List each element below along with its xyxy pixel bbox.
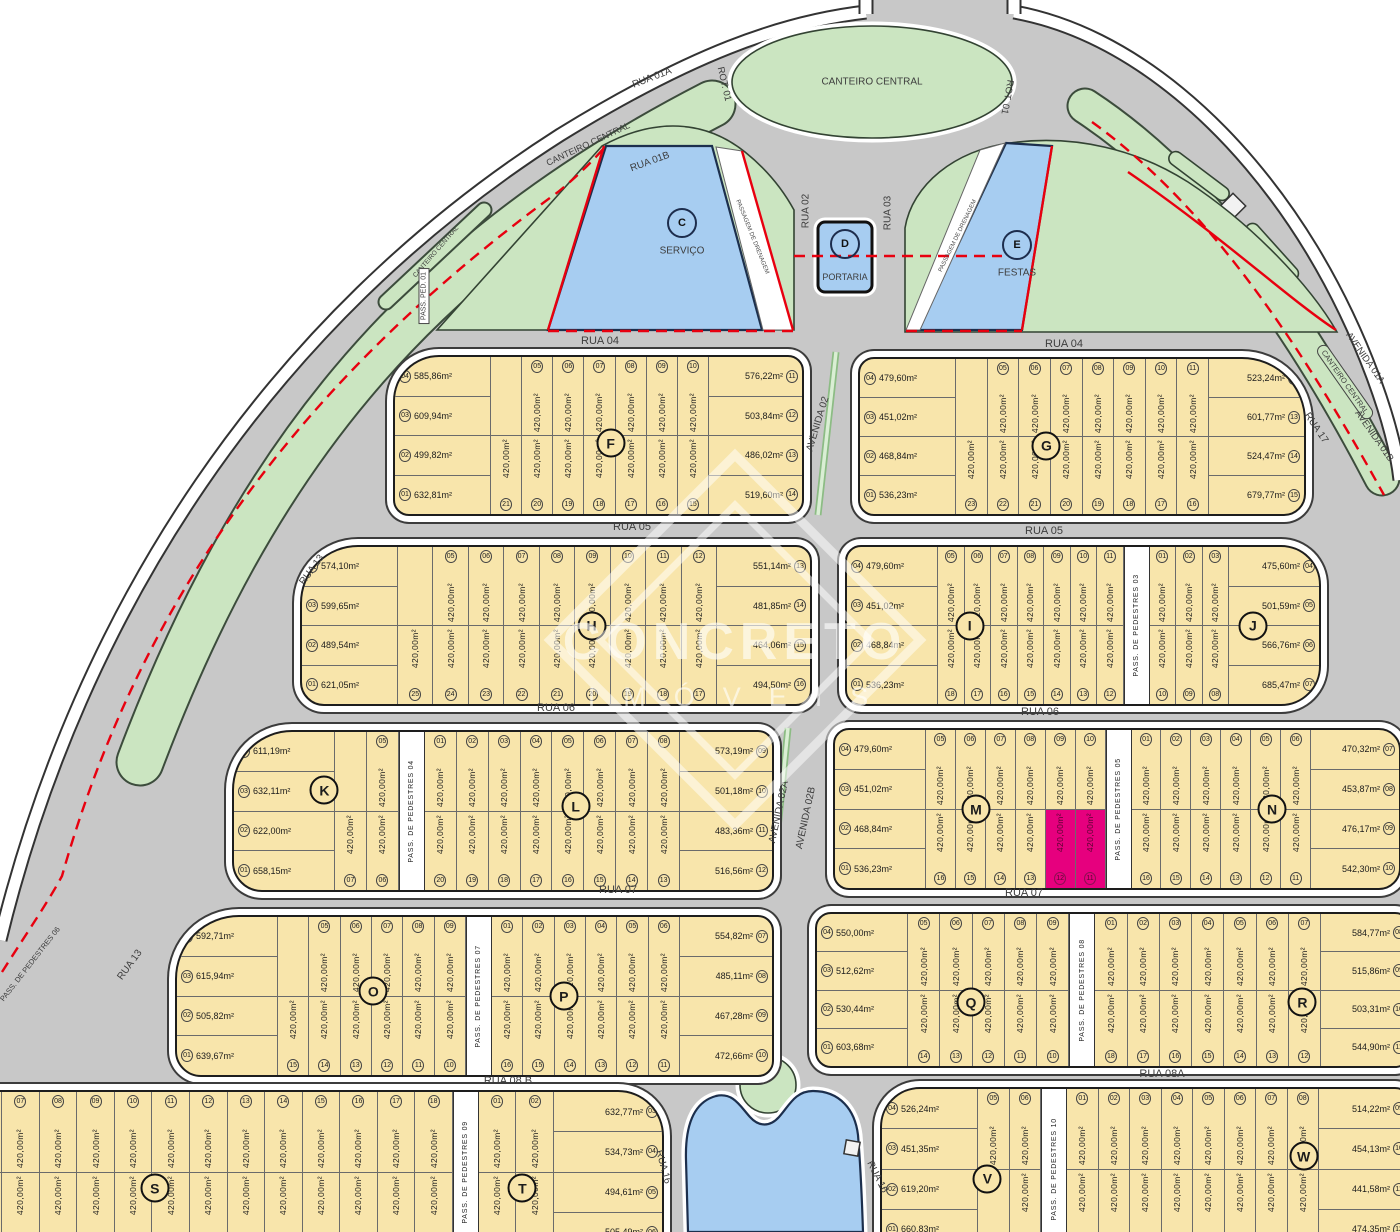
road-label: RUA 04	[1045, 338, 1083, 350]
road-label: RUA 07	[1005, 887, 1043, 899]
block-letter-I: I	[955, 611, 984, 640]
block-letter-S: S	[140, 1174, 169, 1203]
block-letter-Q: Q	[956, 988, 985, 1017]
block-letter-K: K	[310, 776, 339, 805]
road-label: RUA 06	[537, 702, 575, 714]
block-letter-W: W	[1289, 1142, 1318, 1171]
road-label: PASSAGEM DE DRENAGEM	[938, 199, 978, 273]
road-label: RUA 16	[864, 1159, 889, 1195]
road-label: AVENIDA 02	[804, 395, 831, 452]
road-label: AVENIDA 02A	[767, 780, 791, 844]
road-label: RUA 16	[653, 1149, 673, 1185]
road-label: RUA 04	[581, 335, 619, 347]
block-letter-V: V	[973, 1164, 1002, 1193]
block-letter-R: R	[1288, 988, 1317, 1017]
block-letter-L: L	[561, 792, 590, 821]
road-label: PASSAGEM DE DRENAGEM	[734, 199, 769, 275]
area-letter-C: C	[667, 208, 697, 238]
block-letter-F: F	[596, 429, 625, 458]
road-label: RUA 08A	[1139, 1068, 1184, 1080]
road-label: FESTAS	[998, 268, 1036, 279]
road-label: PASS. PED. 01	[419, 268, 430, 324]
road-label: RUA 03	[883, 196, 894, 230]
road-label: CANTEIRO CENTRAL	[821, 77, 922, 88]
block-letter-T: T	[508, 1174, 537, 1203]
road-label: RUA 01B	[629, 150, 671, 174]
road-label: RUA 17	[1302, 411, 1330, 446]
block-letter-O: O	[359, 977, 388, 1006]
block-letter-H: H	[577, 611, 606, 640]
block-letter-P: P	[549, 982, 578, 1011]
block-letter-G: G	[1032, 431, 1061, 460]
road-label: SERVIÇO	[660, 246, 705, 257]
subdivision-map: 04585,86m²03609,94m²02499,82m²01632,81m²…	[0, 0, 1400, 1232]
road-label: RUA 01A	[631, 65, 673, 90]
road-label: RUA 02	[801, 194, 812, 228]
road-label: ROT. 01	[715, 66, 734, 102]
road-label: RUA 05	[613, 521, 651, 533]
road-label: AVENIDA 01B	[1352, 408, 1395, 463]
area-letter-E: E	[1002, 230, 1032, 260]
area-letter-D: D	[830, 229, 860, 259]
road-label: RUA 05	[1025, 525, 1063, 537]
labels-layer: RUA 04RUA 04RUA 05RUA 05RUA 06RUA 06RUA …	[0, 0, 1400, 1232]
road-label: ROT. 01	[999, 79, 1016, 115]
road-label: AVENIDA 02B	[794, 786, 818, 850]
road-label: RUA 08 B	[484, 1075, 532, 1087]
road-label: CANTEIRO CENTRAL	[545, 120, 632, 168]
road-label: RUA 06	[1021, 706, 1059, 718]
block-letter-N: N	[1258, 795, 1287, 824]
road-label: PORTARIA	[822, 272, 867, 282]
road-label: RUA 13	[115, 948, 144, 982]
block-letter-M: M	[962, 795, 991, 824]
road-label: RUA 13	[297, 553, 326, 587]
road-label: RUA 07	[599, 884, 637, 896]
road-label: PASS. DE PEDESTRES 06	[0, 925, 62, 1003]
block-letter-J: J	[1238, 611, 1267, 640]
